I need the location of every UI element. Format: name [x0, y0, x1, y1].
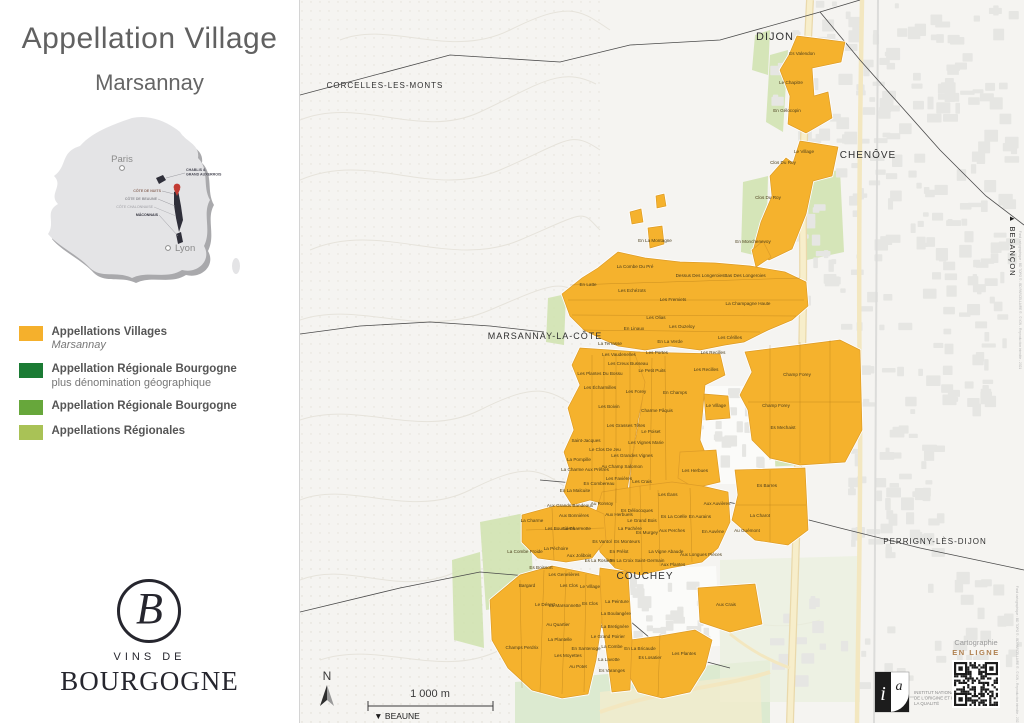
urban-block — [721, 455, 730, 467]
parcel-label: Les Grandes Vignes — [611, 453, 653, 458]
urban-block — [1011, 147, 1017, 154]
urban-block — [898, 323, 912, 330]
urban-block — [941, 384, 953, 393]
parcel-label: En Monchenevoy — [735, 239, 771, 244]
urban-block — [983, 380, 994, 384]
urban-block — [936, 656, 946, 663]
urban-block — [813, 207, 820, 212]
urban-block — [891, 552, 895, 558]
parcel-label: Au Guémont — [734, 528, 761, 533]
logo-bourgogne: BOURGOGNE — [60, 666, 239, 697]
urban-block — [943, 262, 955, 271]
legend-item-regionale-denom: Appellation Régionale Bourgogne plus dén… — [19, 362, 281, 390]
urban-block — [959, 312, 970, 316]
lyon-dot — [165, 246, 170, 251]
parcel-label: La Vigne Abaude — [649, 549, 684, 554]
parcel-label: Les Portes — [646, 350, 669, 355]
urban-block — [848, 30, 860, 42]
urban-block — [880, 452, 895, 460]
parcel-label: Au Potet — [569, 664, 587, 669]
parcel-label: Champ Forey — [762, 403, 791, 408]
urban-block — [984, 130, 998, 142]
urban-block — [869, 97, 875, 102]
legend: Appellations Villages Marsannay Appellat… — [19, 325, 281, 449]
logo-b-letter: B — [136, 583, 163, 634]
urban-block — [886, 173, 897, 179]
parcel-label: En Prélot — [610, 549, 630, 554]
parcel-label: Les Forey — [626, 389, 647, 394]
parcel-label: Le Grand Bois — [627, 518, 657, 523]
urban-block — [716, 421, 722, 429]
urban-block — [917, 237, 926, 250]
besancon-direction-label: ▲ BESANÇON — [1008, 215, 1017, 277]
parcel-label: La Marsonnette — [549, 603, 581, 608]
inao-caption: LA QUALITÉ — [914, 701, 939, 706]
parcel-label: La Boulangère — [601, 611, 631, 616]
urban-block — [984, 180, 996, 192]
urban-block — [936, 102, 950, 113]
parcel-label: Les Boivin — [598, 404, 620, 409]
region-label-chablis-2: GRAND AUXERROIS — [186, 173, 222, 177]
urban-block — [812, 621, 824, 633]
france-locator-map: Paris Lyon CHABLIS & GRAND AUXERROIS CÔT… — [30, 114, 270, 319]
parcel-label: Les Crais — [632, 479, 652, 484]
parcel-label: Es Varanges — [599, 668, 626, 673]
urban-block — [668, 583, 672, 592]
legend-label: Appellation Régionale Bourgogne — [52, 399, 237, 413]
urban-block — [742, 444, 746, 457]
urban-block — [948, 219, 953, 226]
parcel-label: Le Village — [706, 403, 727, 408]
urban-block — [974, 15, 980, 21]
urban-block — [943, 329, 951, 335]
region-label-beaune: CÔTE DE BEAUNE — [124, 196, 157, 201]
parcel-label: Le Clos De Jeu — [589, 447, 621, 452]
urban-block — [993, 584, 1004, 595]
parcel-label: Aux Grands Bandeaux — [547, 503, 594, 508]
page: Appellation Village Marsannay Paris Lyon — [0, 0, 1024, 723]
urban-block — [899, 425, 909, 433]
parcel-label: Les Vaudenelles — [602, 352, 636, 357]
urban-block — [913, 101, 924, 110]
urban-block — [981, 200, 988, 212]
urban-block — [973, 89, 984, 93]
urban-block — [972, 404, 981, 417]
urban-block — [888, 198, 893, 210]
legend-swatch-regionale — [19, 400, 43, 415]
qr-code[interactable] — [952, 660, 1000, 708]
parcel-label: Le Chapitre — [779, 80, 803, 85]
parcel-label: Les Ouzeloy — [669, 324, 695, 329]
parcel-label: Es Barres — [757, 483, 778, 488]
parcel-label: La Combe Froide — [507, 549, 543, 554]
urban-block — [1002, 338, 1006, 348]
urban-block — [879, 325, 884, 331]
parcel-label: La Combe — [601, 644, 623, 649]
urban-block — [913, 73, 921, 81]
urban-block — [883, 294, 892, 301]
urban-block — [1000, 272, 1004, 283]
parcel-label: La Champagne Haute — [726, 301, 771, 306]
urban-block — [921, 461, 926, 469]
parcel-label: Les Plantes — [672, 651, 697, 656]
legend-label: Appellations Régionales — [52, 424, 186, 438]
urban-block — [924, 451, 934, 461]
urban-block — [931, 35, 939, 41]
urban-block — [875, 478, 886, 487]
parcel-label: Dessus Des Longeroies — [676, 273, 725, 278]
urban-block — [963, 53, 973, 62]
parcel-label: Es La Coëlle — [661, 514, 687, 519]
urban-block — [918, 221, 924, 227]
urban-block — [997, 314, 1008, 319]
parcel-label: La Charot — [750, 513, 771, 518]
urban-block — [943, 307, 955, 314]
urban-block — [890, 483, 899, 487]
parcel-label: La Charme Aux Prêtres — [561, 467, 609, 472]
urban-block — [653, 628, 665, 633]
urban-block — [887, 626, 895, 633]
urban-block — [863, 399, 869, 406]
urban-block — [932, 272, 941, 279]
urban-block — [932, 213, 943, 221]
parcel-label: Les Plantes Du Bossu — [577, 371, 623, 376]
parcel-label: La Terrasse — [598, 341, 622, 346]
legend-item-regionale: Appellation Régionale Bourgogne — [19, 399, 281, 415]
urban-block — [909, 434, 918, 438]
parcel-label: En La Croix Saint-Germain — [610, 558, 665, 563]
urban-block — [879, 107, 891, 112]
urban-block — [893, 452, 902, 458]
legend-sublabel: Marsannay — [52, 339, 167, 353]
page-subtitle: Marsannay — [95, 70, 204, 96]
parcel-label: Es Mechaist — [770, 425, 796, 430]
urban-block — [985, 278, 998, 286]
lyon-label: Lyon — [175, 243, 195, 254]
urban-block — [810, 598, 820, 607]
urban-block — [770, 638, 784, 645]
parcel-label: Le Poiset — [641, 429, 661, 434]
urban-block — [981, 579, 992, 586]
urban-block — [991, 253, 999, 263]
urban-block — [965, 381, 974, 388]
urban-block — [820, 644, 826, 650]
urban-block — [960, 91, 975, 95]
urban-block — [938, 94, 945, 100]
urban-block — [984, 359, 988, 371]
town-label: DIJON — [756, 31, 794, 43]
urban-block — [728, 388, 740, 398]
parcel-label: En Gélocopin — [773, 108, 801, 113]
urban-block — [1003, 199, 1016, 209]
urban-block — [977, 285, 982, 294]
inao-caption: INSTITUT NATIONAL — [914, 690, 957, 695]
urban-block — [925, 190, 935, 197]
urban-block — [976, 352, 984, 362]
map-canvas[interactable]: Es ValendonLe ChapitreEn GélocopinLe Vil… — [300, 0, 1024, 723]
urban-block — [914, 154, 925, 163]
urban-block — [844, 132, 857, 145]
urban-block — [922, 445, 937, 451]
urban-block — [861, 651, 866, 657]
urban-block — [897, 367, 904, 377]
urban-block — [985, 83, 995, 91]
beaune-direction-label: ▼ BEAUNE — [374, 711, 420, 721]
urban-block — [975, 321, 987, 328]
urban-block — [906, 512, 914, 524]
urban-block — [1005, 156, 1020, 163]
urban-block — [882, 368, 896, 372]
parcel-label: Es Losatier — [639, 655, 662, 660]
urban-block — [879, 58, 889, 65]
urban-block — [908, 170, 916, 177]
parcel-label: La Bretignère — [601, 624, 629, 629]
urban-block — [997, 616, 1006, 627]
legend-label: Appellations Villages — [52, 325, 167, 339]
urban-block — [895, 3, 899, 8]
parcel-label: Aux Longues Pièces — [680, 552, 723, 557]
parcel-label: Le Village — [794, 149, 815, 154]
parcel-label: Le Village — [580, 584, 601, 589]
parcel-label: En Combereau — [584, 481, 615, 486]
urban-block — [825, 276, 840, 286]
town-label: MARSANNAY-LA-CÔTE — [488, 331, 603, 341]
inao-caption: DE L'ORIGINE ET DE — [914, 695, 957, 700]
urban-block — [863, 107, 875, 115]
urban-block — [945, 273, 957, 280]
parcel-label: Aux Plantes — [661, 562, 686, 567]
page-title: Appellation Village — [22, 22, 278, 56]
urban-block — [861, 306, 873, 311]
town-label: COUCHEY — [616, 571, 673, 582]
urban-block — [918, 369, 923, 376]
urban-block — [925, 480, 932, 484]
parcel-label: La Lavotte — [598, 657, 620, 662]
urban-block — [899, 474, 912, 480]
urban-block — [756, 457, 764, 468]
urban-block — [999, 83, 1008, 90]
urban-block — [937, 513, 945, 523]
parcel-label: Les Éans — [658, 491, 678, 497]
urban-block — [946, 285, 956, 296]
parcel-label: Au Ronsoy — [591, 501, 614, 506]
urban-block — [943, 114, 958, 122]
parcel-label: En Aurains — [689, 514, 712, 519]
carto-label-2: EN LIGNE — [952, 648, 999, 657]
urban-block — [945, 344, 954, 355]
appellation-village-parcel[interactable] — [656, 194, 666, 208]
svg-text:a: a — [896, 679, 903, 694]
region-label-chalonnaise: CÔTE CHALONNAISE — [116, 204, 153, 209]
carto-label-1: Cartographie — [954, 638, 997, 647]
parcel-label: En Linaux — [624, 326, 645, 331]
urban-block — [771, 97, 783, 106]
map-area[interactable]: Es ValendonLe ChapitreEn GélocopinLe Vil… — [300, 0, 1024, 723]
urban-block — [946, 397, 958, 402]
region-label-chablis-1: CHABLIS & — [186, 168, 206, 172]
urban-block — [666, 621, 674, 631]
urban-block — [905, 397, 916, 407]
parcel-label: Les Fremiets — [660, 297, 687, 302]
legend-swatch-villages — [19, 326, 43, 341]
urban-block — [978, 141, 990, 153]
urban-block — [926, 237, 935, 247]
parcel-label: Bas Des Longeroies — [724, 273, 766, 278]
appellation-village-parcel[interactable] — [630, 209, 643, 224]
appellation-village-parcel[interactable] — [740, 340, 862, 465]
urban-block — [841, 324, 852, 330]
parcel-label: Les Vignes Marie — [628, 440, 664, 445]
parcel-label: Les Echézots — [618, 288, 646, 293]
urban-block — [873, 82, 885, 86]
urban-block — [722, 441, 732, 447]
parcel-label: Aux Crais — [716, 602, 737, 607]
map-credits-vertical: Fond cartographique : BD TOPO ® - BD PAR… — [1018, 231, 1022, 370]
urban-block — [841, 641, 848, 652]
urban-block — [972, 152, 985, 162]
urban-block — [928, 584, 934, 593]
vins-de-bourgogne-logo: B VINS DE BOURGOGNE — [60, 579, 239, 697]
parcel-label: La Plantelle — [548, 637, 572, 642]
parcel-label: En La Bricaude — [624, 646, 656, 651]
parcel-label: Les Cérilles — [718, 335, 743, 340]
map-credits-vertical: Fond cartographique : BD TOPO ® - BD PAR… — [1015, 586, 1019, 723]
france-map-svg: Paris Lyon CHABLIS & GRAND AUXERROIS CÔT… — [30, 114, 270, 319]
parcel-label: En La Verde — [657, 339, 683, 344]
north-label: N — [323, 669, 332, 683]
urban-block — [899, 123, 912, 134]
urban-block — [897, 28, 907, 37]
urban-block — [801, 653, 814, 663]
parcel-label: En Champs — [663, 390, 688, 395]
urban-block — [994, 302, 1003, 312]
parcel-label: Es Monteurs — [614, 539, 640, 544]
urban-block — [886, 235, 901, 243]
logo-vins-de: VINS DE — [113, 651, 185, 663]
parcel-label: Les Clos — [560, 583, 579, 588]
urban-block — [923, 212, 929, 216]
parcel-label: Champ Forey — [783, 372, 812, 377]
parcel-label: Aux Jolibois — [567, 553, 592, 558]
urban-block — [636, 584, 643, 589]
urban-block — [867, 529, 881, 534]
urban-block — [876, 491, 882, 502]
parcel-label: Les Moyettes — [554, 653, 582, 658]
inao-logo: ia — [875, 672, 914, 712]
parcel-label: Aux Auvières — [704, 501, 732, 506]
parcel-label: Au Quartier — [546, 622, 570, 627]
parcel-label: En La Montagne — [638, 238, 672, 243]
legend-label: Appellation Régionale Bourgogne — [52, 362, 237, 376]
urban-block — [946, 64, 960, 70]
urban-block — [994, 233, 1007, 238]
urban-block — [956, 572, 969, 584]
parcel-label: Les Recilles — [694, 367, 719, 372]
urban-block — [935, 185, 948, 195]
parcel-label: Aux Perches — [659, 528, 686, 533]
urban-block — [812, 235, 820, 246]
parcel-label: La Charme — [521, 518, 544, 523]
urban-block — [989, 8, 1002, 14]
urban-block — [948, 35, 960, 43]
urban-block — [930, 14, 942, 25]
parcel-label: Es Déliocoques — [621, 508, 654, 513]
urban-block — [844, 44, 857, 51]
urban-block — [959, 245, 971, 258]
urban-block — [927, 97, 933, 110]
urban-block — [883, 133, 891, 138]
parcel-label: Le Petit Puits — [638, 368, 666, 373]
legend-swatch-regionale-denom — [19, 363, 43, 378]
urban-block — [911, 223, 916, 233]
urban-block — [978, 608, 985, 620]
urban-block — [881, 524, 893, 534]
urban-block — [935, 641, 942, 651]
urban-block — [816, 251, 831, 256]
appellation-village-parcel[interactable] — [698, 584, 762, 632]
urban-block — [968, 97, 980, 105]
legend-swatch-regionales — [19, 425, 43, 440]
urban-block — [715, 437, 730, 442]
urban-block — [1003, 143, 1012, 151]
sidebar: Appellation Village Marsannay Paris Lyon — [0, 0, 300, 723]
parcel-label: En La Malcuite — [560, 488, 591, 493]
urban-block — [938, 35, 943, 39]
urban-block — [991, 242, 1002, 253]
parcel-label: La Péchoire — [544, 546, 569, 551]
parcel-label: Es Clos — [582, 601, 599, 606]
urban-block — [990, 97, 1003, 109]
urban-block — [848, 488, 856, 495]
urban-block — [961, 219, 967, 226]
town-label: CORCELLES-LES-MONTS — [327, 81, 444, 90]
urban-block — [647, 625, 653, 631]
parcel-label: Champs Perdrix — [506, 645, 540, 650]
urban-block — [1000, 114, 1012, 125]
urban-block — [737, 421, 743, 432]
urban-block — [923, 289, 937, 299]
urban-block — [968, 276, 979, 285]
urban-block — [865, 638, 871, 644]
parcel-label: Es Boissort — [529, 565, 553, 570]
parcel-label: En Latte — [579, 282, 597, 287]
urban-block — [794, 675, 809, 687]
urban-block — [869, 180, 880, 185]
parcel-label: Es Murgey — [636, 530, 659, 535]
parcel-label: La Peinture — [605, 599, 629, 604]
urban-block — [916, 183, 921, 189]
urban-block — [638, 588, 643, 600]
town-label: PERRIGNY-LÈS-DIJON — [883, 537, 987, 546]
urban-block — [910, 409, 915, 414]
urban-block — [886, 487, 901, 497]
urban-block — [936, 248, 948, 260]
corsica — [232, 258, 240, 274]
urban-block — [993, 29, 1004, 41]
appellation-village-parcel[interactable] — [648, 226, 664, 248]
town-label: CHENÔVE — [840, 148, 896, 161]
urban-block — [943, 366, 953, 375]
parcel-label: Clos Du Roy — [755, 195, 781, 200]
urban-block — [1009, 11, 1019, 19]
urban-block — [813, 257, 818, 268]
parcel-label: Aux Bonnières — [559, 513, 590, 518]
urban-block — [828, 260, 833, 272]
parcel-label: Es Vantol — [592, 539, 611, 544]
urban-block — [911, 83, 922, 88]
urban-block — [961, 595, 974, 605]
logo-b-circle: B — [117, 579, 181, 643]
